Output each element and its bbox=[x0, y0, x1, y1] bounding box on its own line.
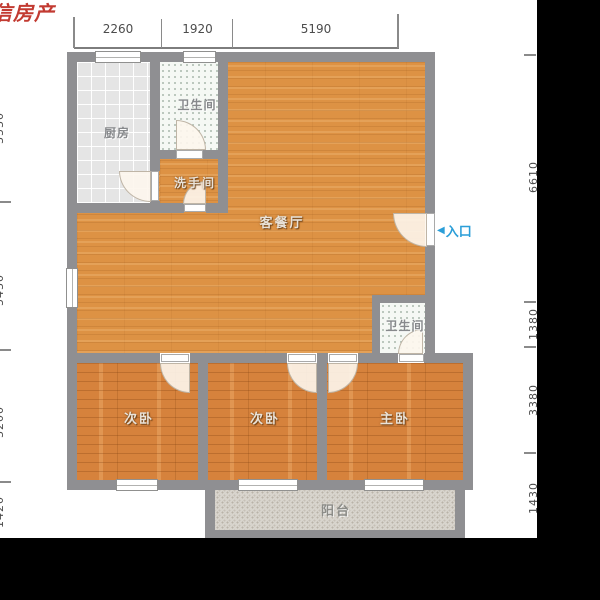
left-tick-2 bbox=[0, 349, 11, 351]
bedroom-left-door-panel bbox=[161, 354, 189, 362]
top-dimension-line bbox=[74, 47, 399, 49]
floorplan-canvas: 信房产 2260 1920 5190 3530 5430 3200 1420 6… bbox=[0, 0, 600, 600]
window-bathroom-top bbox=[183, 51, 216, 63]
right-tick-4 bbox=[524, 452, 536, 454]
watermark: 信房产 bbox=[0, 0, 55, 26]
dim-left-4: 1420 bbox=[0, 484, 7, 540]
room-label-master-bedroom: 主卧 bbox=[365, 408, 425, 427]
room-label-bathroom-top: 卫生间 bbox=[167, 96, 227, 113]
window-master-bedroom bbox=[364, 479, 424, 491]
wall-right-mid bbox=[425, 246, 435, 363]
entry-label: 入口 bbox=[446, 221, 472, 240]
dim-top-1: 2260 bbox=[74, 22, 162, 36]
wall-bath2-top bbox=[372, 295, 435, 303]
window-bedroom-left bbox=[116, 479, 158, 491]
bathroom-right-door-panel bbox=[399, 354, 424, 362]
wall-master-right bbox=[463, 353, 473, 490]
entry-arrow-icon: ◀ bbox=[437, 226, 445, 236]
matte-bottom bbox=[0, 538, 600, 600]
bathroom-top-door-panel bbox=[176, 150, 203, 159]
room-label-bedroom-left: 次卧 bbox=[109, 408, 169, 427]
room-label-washroom: 洗手间 bbox=[165, 174, 225, 191]
wall-bath-bottom-a bbox=[150, 150, 176, 159]
window-living-left bbox=[66, 268, 78, 308]
entry-marker: ◀ 入口 bbox=[437, 221, 472, 240]
dim-left-3: 3200 bbox=[0, 394, 7, 450]
wall-bedroom-divider-2 bbox=[317, 363, 327, 480]
wall-mid-b bbox=[190, 353, 287, 363]
master-door-panel bbox=[329, 354, 357, 362]
window-bedroom-middle bbox=[238, 479, 298, 491]
wall-mid-d bbox=[358, 353, 398, 363]
wall-right-upper bbox=[425, 52, 435, 213]
window-kitchen bbox=[95, 51, 141, 63]
wall-bedroom-divider-1 bbox=[198, 363, 208, 480]
right-tick-1 bbox=[524, 54, 536, 56]
dim-top-3: 5190 bbox=[233, 22, 399, 36]
kitchen-door-panel bbox=[151, 171, 159, 201]
wall-bath-bottom-b bbox=[203, 150, 228, 159]
bedroom-middle-door-panel bbox=[288, 354, 316, 362]
room-label-bedroom-middle: 次卧 bbox=[235, 408, 295, 427]
dim-left-1: 3530 bbox=[0, 100, 7, 156]
room-label-balcony: 阳台 bbox=[306, 500, 366, 519]
room-label-living-dining: 客餐厅 bbox=[252, 212, 312, 231]
wall-mid-a bbox=[67, 353, 160, 363]
washroom-door-panel bbox=[184, 204, 206, 212]
wall-kitchen-bottom-a bbox=[67, 203, 184, 213]
room-label-bathroom-right: 卫生间 bbox=[375, 317, 435, 334]
dim-left-2: 5430 bbox=[0, 262, 7, 318]
wall-kitchen-bottom-b bbox=[206, 203, 228, 213]
wall-mid-c bbox=[317, 353, 328, 363]
matte-right bbox=[537, 0, 600, 600]
left-tick-1 bbox=[0, 201, 11, 203]
wall-balcony-bottom bbox=[205, 530, 465, 538]
room-label-kitchen: 厨房 bbox=[87, 124, 147, 141]
left-tick-3 bbox=[0, 481, 11, 483]
entry-door-panel bbox=[426, 213, 435, 246]
dim-top-2: 1920 bbox=[162, 22, 233, 36]
